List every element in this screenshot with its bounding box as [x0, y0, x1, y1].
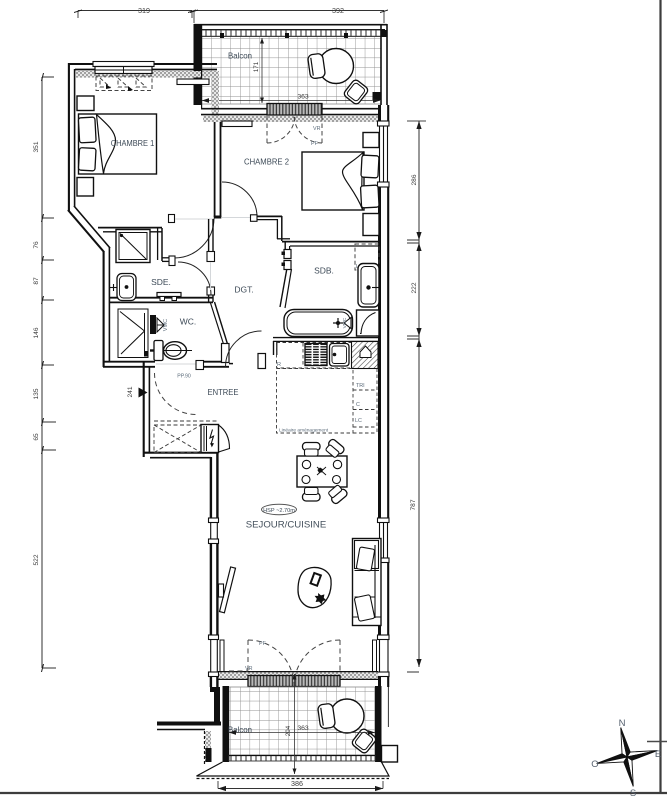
svg-text:PF: PF — [259, 641, 267, 647]
svg-text:VMC: VMC — [342, 317, 348, 328]
svg-text:87: 87 — [33, 277, 40, 285]
svg-text:HSP ~2.70m: HSP ~2.70m — [263, 508, 295, 514]
svg-text:286: 286 — [411, 174, 418, 185]
svg-text:SEJOUR/CUISINE: SEJOUR/CUISINE — [246, 520, 327, 531]
svg-text:R: R — [277, 362, 281, 368]
svg-text:319: 319 — [138, 6, 150, 15]
svg-text:522: 522 — [33, 554, 40, 565]
svg-text:241: 241 — [127, 386, 134, 397]
svg-text:76: 76 — [33, 241, 40, 249]
svg-text:S: S — [630, 788, 636, 799]
svg-text:CHAMBRE 2: CHAMBRE 2 — [244, 157, 289, 167]
svg-text:135: 135 — [33, 388, 40, 399]
svg-text:204: 204 — [285, 725, 292, 736]
svg-text:N: N — [619, 718, 626, 729]
svg-text:VR: VR — [245, 666, 253, 672]
svg-text:392: 392 — [332, 6, 344, 15]
svg-text:LC: LC — [355, 418, 362, 424]
svg-text:VR: VR — [313, 126, 321, 132]
svg-text:SDE.: SDE. — [151, 277, 171, 287]
svg-text:DGT.: DGT. — [234, 285, 253, 295]
svg-text:787: 787 — [410, 499, 417, 510]
svg-text:O: O — [591, 759, 598, 770]
svg-text:Balcon: Balcon — [228, 51, 252, 61]
svg-text:65: 65 — [33, 433, 40, 441]
svg-text:CHAMBRE 1: CHAMBRE 1 — [111, 138, 155, 148]
svg-text:C: C — [356, 402, 360, 408]
svg-text:171: 171 — [253, 61, 260, 72]
svg-text:TRI: TRI — [356, 383, 365, 389]
svg-text:351: 351 — [33, 141, 40, 152]
svg-text:363: 363 — [297, 94, 309, 101]
svg-text:146: 146 — [33, 327, 40, 338]
svg-text:ENTREE: ENTREE — [208, 387, 239, 397]
svg-text:222: 222 — [411, 282, 418, 293]
svg-text:PF: PF — [311, 141, 319, 147]
svg-text:E: E — [655, 749, 661, 760]
svg-text:SDB.: SDB. — [314, 266, 334, 276]
svg-text:386: 386 — [291, 779, 303, 788]
svg-text:VMC: VMC — [163, 319, 169, 331]
svg-text:WC.: WC. — [180, 317, 197, 327]
svg-text:PP.90: PP.90 — [177, 374, 191, 380]
svg-text:363: 363 — [297, 725, 309, 732]
svg-text:Linéaire aménagement: Linéaire aménagement — [279, 428, 329, 434]
